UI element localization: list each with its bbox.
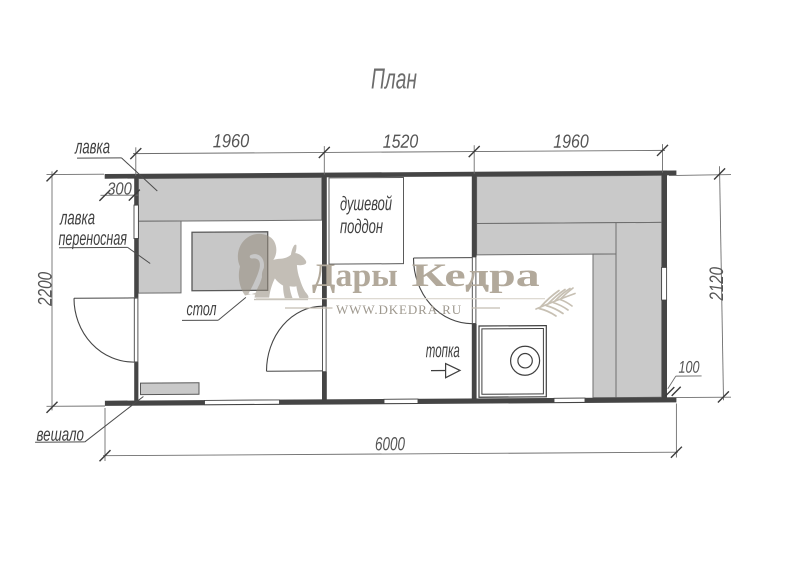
svg-text:топка: топка [426,340,460,362]
svg-text:лавка: лавка [74,136,110,158]
svg-text:1960: 1960 [213,131,250,152]
svg-text:6000: 6000 [375,434,405,455]
svg-text:100: 100 [679,358,700,377]
svg-text:стол: стол [187,299,217,320]
svg-text:WWW.DKEDRA.RU: WWW.DKEDRA.RU [336,302,462,317]
svg-text:Кедра: Кедра [412,256,540,293]
svg-text:1520: 1520 [383,132,419,153]
svg-text:2200: 2200 [34,272,56,307]
svg-text:душевой: душевой [340,193,392,215]
svg-text:переносная: переносная [59,228,128,250]
svg-text:План: План [371,64,417,96]
svg-text:Дары: Дары [312,257,398,293]
svg-text:поддон: поддон [340,216,383,238]
svg-text:лавка: лавка [59,207,95,229]
svg-text:300: 300 [107,178,132,198]
svg-text:1960: 1960 [553,132,589,153]
svg-text:2120: 2120 [706,267,728,302]
